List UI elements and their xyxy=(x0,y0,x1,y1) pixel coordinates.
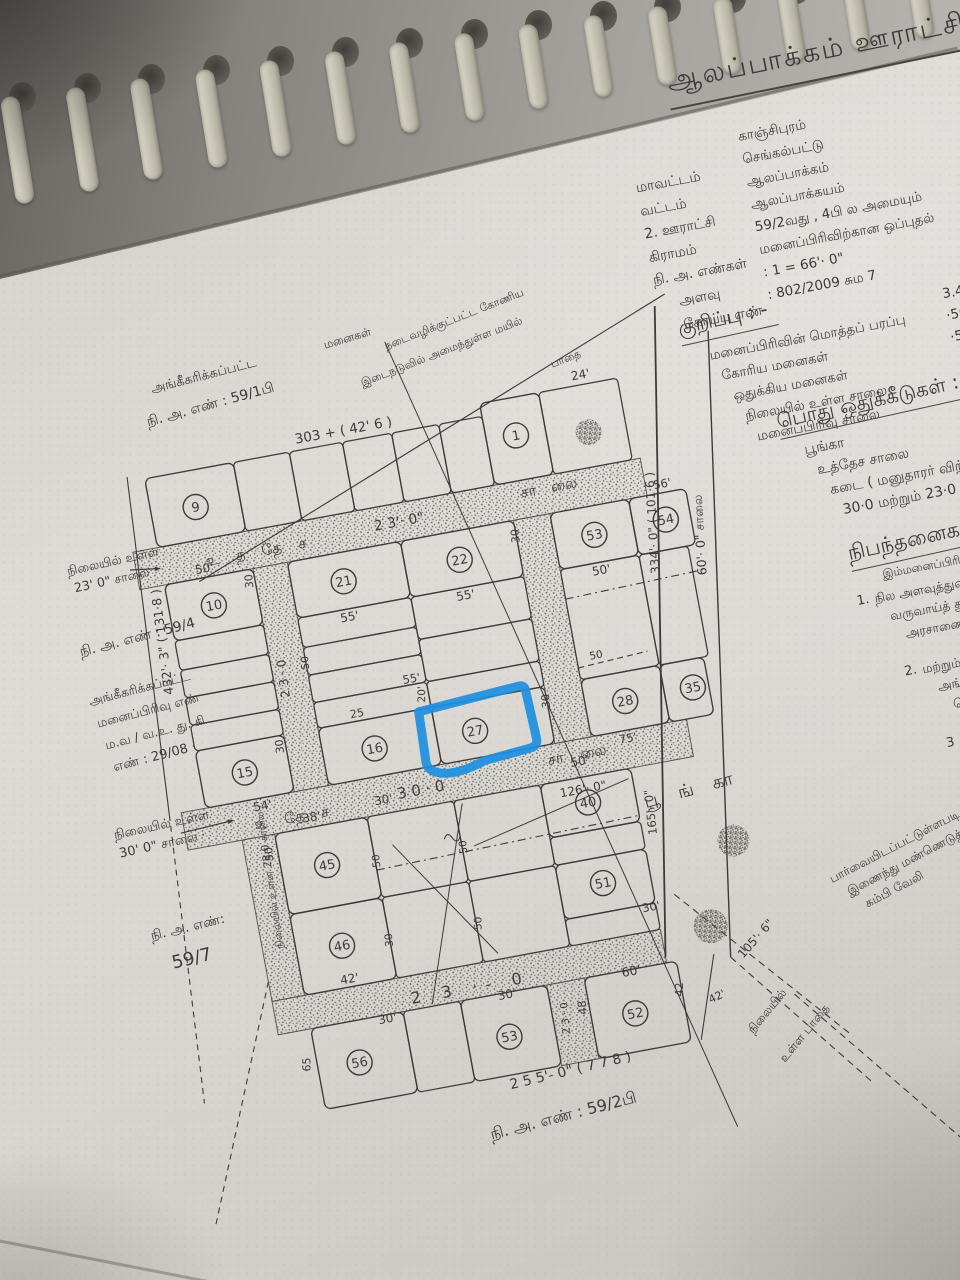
dimension-label: 50 xyxy=(588,648,603,662)
plot-cell xyxy=(289,442,355,521)
map-annotation: நி. அ. எண்: xyxy=(149,911,226,944)
boundary-line xyxy=(674,867,853,1063)
plot-cell xyxy=(391,424,451,502)
dimension-label: 42' xyxy=(706,987,727,1006)
svg-text:10: 10 xyxy=(205,597,224,615)
dimension-label: 105'· 6" xyxy=(735,916,777,960)
dimension-label: 65 xyxy=(300,1058,313,1072)
dimension-label: 30' xyxy=(377,1010,398,1027)
dimension-label: 50 xyxy=(457,840,470,854)
plot-cell xyxy=(342,433,404,511)
plot-35: 35 xyxy=(659,657,714,722)
svg-text:21: 21 xyxy=(334,573,353,591)
svg-text:51: 51 xyxy=(594,875,613,893)
dimension-label: 42' xyxy=(339,970,360,987)
dimension-label: 50 xyxy=(370,854,383,868)
map-annotation: நிலையில் xyxy=(745,986,790,1036)
svg-text:28: 28 xyxy=(616,693,635,711)
dimension-label: 50 xyxy=(472,917,484,930)
plot-cell xyxy=(550,821,646,865)
plot-cell xyxy=(190,709,283,751)
dimension-label: 24' xyxy=(570,366,591,383)
dimension-label: 30 xyxy=(242,574,256,589)
header-labels: மாவட்டம்வட்டம்2. ஊராட்சிகிராமம்நி. அ. எண… xyxy=(634,160,749,293)
dimension-label: 60'· 0" சாலை xyxy=(690,494,710,576)
map-annotation: மனைகள் xyxy=(322,324,374,352)
dimension-label: 30 xyxy=(539,694,553,709)
note-value: 3.45 ஏக் xyxy=(940,274,960,305)
header-values: காஞ்சிபுரம்செங்கல்பட்டுஆலப்பாக்கம்ஆலப்பா… xyxy=(736,94,944,307)
dimension-label: 50' xyxy=(591,562,612,579)
svg-text:9: 9 xyxy=(190,500,201,516)
tree-symbol xyxy=(715,822,752,859)
dimension-label: 42 xyxy=(673,982,686,996)
dimension-label: 48 xyxy=(575,1000,589,1015)
road-strip xyxy=(547,978,599,1066)
dimension-label: 55' xyxy=(401,670,421,687)
dimension-label: 25 xyxy=(349,706,365,721)
dimension-label: 60' xyxy=(620,962,642,980)
map-annotation: உள்ள பாதை xyxy=(776,1001,832,1065)
dimension-label: 30 xyxy=(508,528,522,543)
svg-text:46: 46 xyxy=(333,938,352,956)
svg-text:45: 45 xyxy=(318,857,337,875)
plot-1: 1 xyxy=(480,393,554,486)
plot-cell xyxy=(403,1001,475,1092)
svg-text:56: 56 xyxy=(350,1055,369,1073)
dimension-label: 30 xyxy=(383,933,396,947)
dimension-label: 50 xyxy=(299,655,312,669)
dimension-label: 30' xyxy=(497,986,518,1003)
map-annotation: பூ ங் கா xyxy=(642,766,743,813)
dimension-label: 20' xyxy=(416,686,428,702)
map-annotation: 59/7 xyxy=(170,944,214,974)
plot-56: 56 xyxy=(311,1012,418,1110)
dimension-label: 30 xyxy=(273,739,287,754)
boundary-line xyxy=(393,829,499,968)
dimension-label: 55' xyxy=(339,608,360,625)
document-title: ஆலப்பாக்கம் ஊராட்சி xyxy=(662,4,960,110)
photo-of-survey-document: 911021225354151627283545464051565352303 … xyxy=(0,0,960,1280)
map-annotation: நி. அ. எண் : 59/2பி xyxy=(488,1087,638,1143)
svg-text:15: 15 xyxy=(236,765,255,783)
boundary-line xyxy=(376,815,641,870)
plot-51: 51 xyxy=(555,849,655,920)
svg-text:1: 1 xyxy=(511,428,522,444)
road-strip xyxy=(513,514,591,744)
road-strip xyxy=(253,562,329,792)
tree-symbol xyxy=(573,417,603,447)
dimension-label: 30' xyxy=(641,898,661,915)
svg-text:53: 53 xyxy=(585,527,604,545)
svg-text:35: 35 xyxy=(684,680,703,698)
svg-text:22: 22 xyxy=(450,552,469,570)
plot-cell xyxy=(313,682,431,729)
plot-cell xyxy=(367,801,468,898)
svg-text:53: 53 xyxy=(500,1029,519,1047)
boundary-line xyxy=(565,569,706,599)
svg-text:16: 16 xyxy=(365,741,384,759)
plot-54: 54 xyxy=(628,488,695,555)
map-annotation: நி. அ. எண் : 59/4 xyxy=(78,615,197,660)
plot-cell xyxy=(303,627,421,675)
plot-cell xyxy=(468,866,569,963)
dimension-label: 55' xyxy=(455,587,476,604)
plot-cell xyxy=(382,882,483,979)
boundary-line xyxy=(794,969,960,1163)
svg-text:52: 52 xyxy=(626,1005,645,1023)
svg-text:27: 27 xyxy=(466,723,485,741)
note-values: 3.45 ஏக்·50·56 xyxy=(940,274,960,349)
condition-2.: 2.மற்றும் பூங்காவஅங்கீகரிக்கப்படதெரிவித்… xyxy=(921,636,960,718)
